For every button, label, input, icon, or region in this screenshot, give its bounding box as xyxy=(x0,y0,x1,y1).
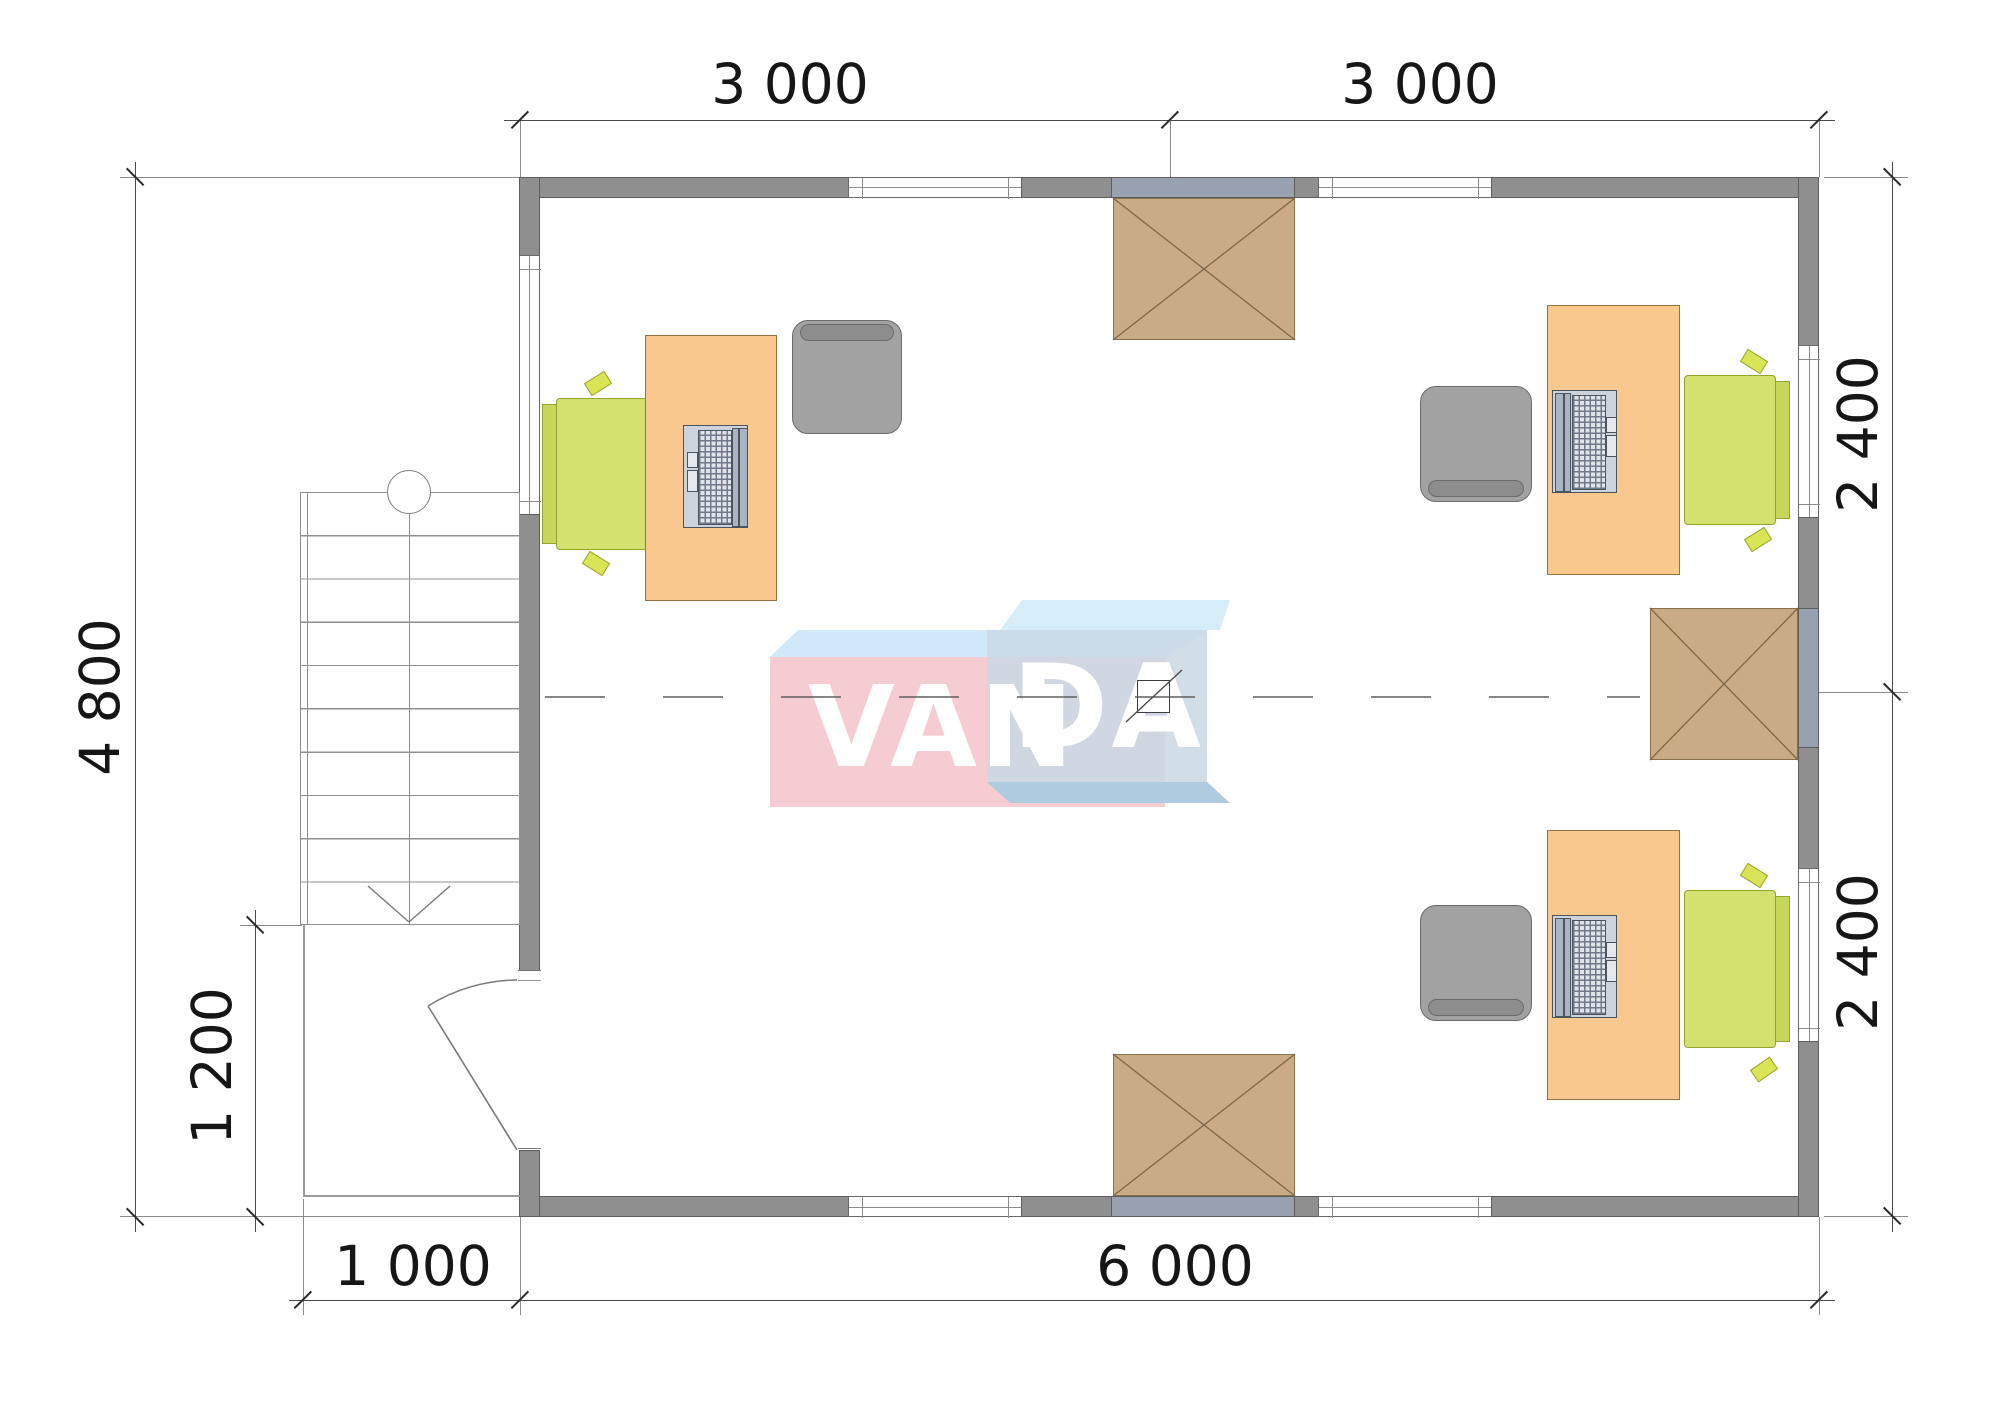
door-swing-arc xyxy=(428,980,517,1006)
stair-arrow xyxy=(368,886,409,922)
door-leaf xyxy=(428,1006,517,1150)
linework-overlay xyxy=(0,0,2000,1410)
centerline-marker-diagonal xyxy=(1126,670,1182,722)
stair-arrow xyxy=(409,886,450,922)
floor-plan: 3 000 3 000 4 800 1 200 1 000 6 000 2 40… xyxy=(0,0,2000,1410)
